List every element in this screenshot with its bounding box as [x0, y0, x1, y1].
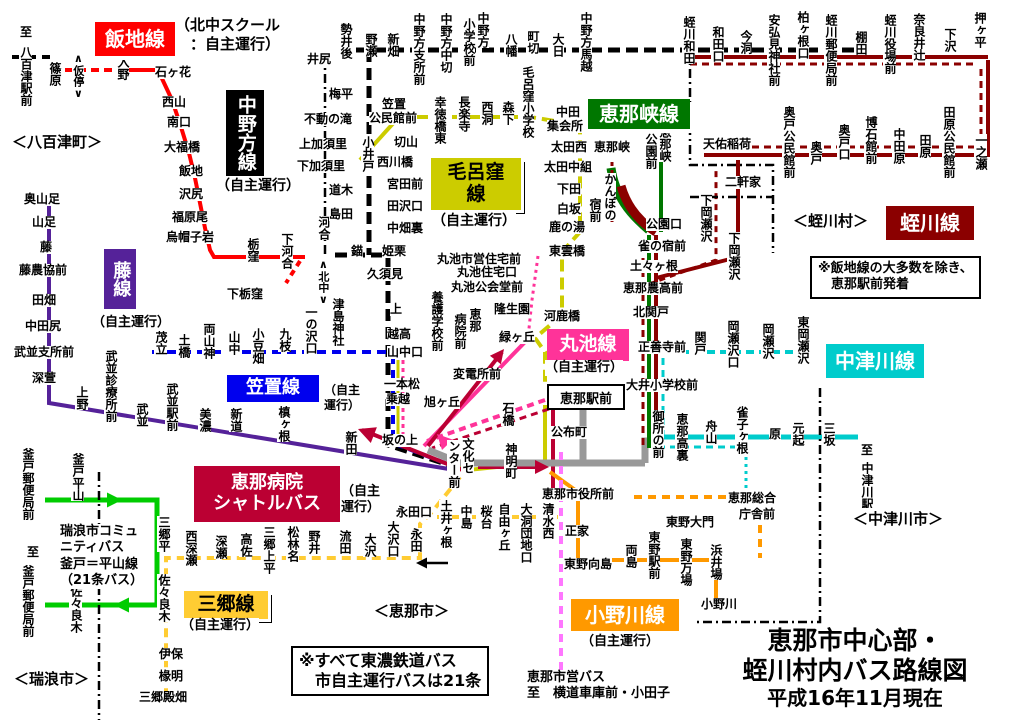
station-label: 下加須里 — [297, 160, 345, 173]
station-label: 中野方 — [476, 12, 489, 48]
station-label: 桜台 — [479, 505, 492, 529]
station-label: 恵那峡 — [658, 126, 671, 162]
route-name-box-fuji: 藤線 — [104, 249, 136, 309]
station-label: 元起 — [791, 422, 804, 446]
station-label: 下栃窪 — [227, 288, 263, 301]
station-label: 山中口 — [387, 346, 423, 359]
station-label: 中島 — [459, 505, 472, 529]
station-label: 久須見 — [367, 268, 403, 281]
station-label: 恵那高裏 — [675, 413, 688, 461]
station-label: 田沢口 — [387, 200, 423, 213]
station-label: 大井小学校前 — [626, 379, 698, 392]
route-name-box-onogawa: 小野川線 — [571, 599, 679, 631]
route-name-box-shuttle: 恵那病院シャトルバス — [194, 466, 340, 522]
station-label: 藤農協前 — [19, 264, 67, 277]
station-label: 雀子ヶ根 — [735, 406, 748, 454]
station-label: 二軒家 — [725, 176, 761, 189]
station-label: 茂立 — [154, 331, 167, 355]
station-label: 笠置 — [382, 98, 406, 111]
station-label: 今洞 — [739, 30, 752, 54]
station-label: 佐々良木 — [157, 574, 170, 622]
region-boundary-label: ＜瑞浪市＞ — [14, 668, 89, 689]
station-label: 至 — [27, 546, 39, 559]
station-label: 八百津駅前 — [19, 46, 32, 106]
ena-station-box: 恵那駅前 — [547, 384, 625, 410]
station-label: 北関戸 — [633, 306, 669, 319]
map-note-shuttle-jishu: （自主運行） — [341, 484, 380, 517]
route-name-box-morokubo: 毛呂窪線 — [431, 158, 521, 210]
station-label: 井尻 — [307, 53, 331, 66]
station-label: 緑ヶ丘 — [499, 331, 535, 344]
station-label: 土々ヶ根 — [630, 260, 678, 273]
station-label: 恵那市役所前 — [542, 488, 614, 501]
station-label: 幸徳橋東 — [433, 96, 446, 144]
station-label: 自由ヶ丘 — [497, 503, 510, 551]
station-label: 槙ヶ根 — [277, 406, 290, 442]
direction-arrow-icon — [114, 598, 129, 613]
station-label: 勢井後 — [339, 23, 352, 59]
station-label: ∧仮停∨ — [72, 52, 84, 100]
station-label: 奥戸 — [809, 141, 822, 165]
station-label: 上 — [390, 303, 402, 316]
station-label: かんぽの — [603, 173, 616, 221]
map-note-iiji-depot-note: ※飯地線の大多数を除き、 恵那駅前発着 — [810, 256, 981, 299]
title-line-1: 恵那市中心部・ — [700, 626, 1010, 656]
station-label: 田原 — [918, 134, 931, 158]
station-label: 正善寺前 — [638, 341, 686, 354]
station-label: 小井戸 — [361, 136, 374, 172]
station-label: 錨 — [351, 245, 363, 258]
station-label: 天佑稲荷 — [703, 138, 751, 151]
station-label: 中野方支所前 — [412, 13, 425, 85]
station-label: 姫栗 — [382, 245, 406, 258]
station-label: 長楽寺 — [457, 96, 470, 132]
station-label: 烏帽子岩 — [166, 231, 214, 244]
station-label: 椽明 — [159, 670, 183, 683]
title-date: 平成16年11月現在 — [700, 686, 1010, 710]
station-label: 両山神 — [202, 323, 215, 359]
station-label: 伊保 — [159, 648, 183, 661]
station-label: 佐々良木 — [69, 585, 82, 633]
station-label: 文化セ — [461, 438, 474, 474]
station-label: 中田尻 — [25, 320, 61, 333]
station-label: 下河合 — [280, 233, 293, 269]
station-label: 武並支所前 — [14, 346, 74, 359]
station-label: 飯地 — [179, 165, 203, 178]
station-label: 太田中組 — [544, 161, 592, 174]
station-label: 白坂 — [557, 203, 581, 216]
station-label: 両島 — [624, 544, 637, 568]
map-note-ena-city-bus: 恵那市営バス至 横道車庫前・小田子 — [527, 670, 670, 703]
station-label: 押ヶ平 — [973, 12, 986, 48]
station-label: 蛭川和田 — [682, 16, 695, 64]
map-note-iiji-note: （北中スクール ：自主運行） — [175, 16, 280, 54]
station-label: 丸池公会堂前 — [451, 281, 523, 294]
station-label: 深萱 — [32, 372, 56, 385]
station-label: 釜戸郵便局前 — [21, 565, 34, 637]
station-label: 下沢 — [943, 28, 956, 52]
station-label: 正家 — [565, 525, 589, 538]
station-label: 和田口 — [711, 26, 724, 62]
station-label: 中田 — [556, 106, 580, 119]
map-title: 恵那市中心部・ 蛭川村内バス路線図 平成16年11月現在 — [700, 626, 1010, 710]
station-label: 一の沢口 — [304, 306, 317, 354]
route-name-box-nakanoho: 中野方線 — [226, 90, 264, 176]
map-note-onogawa-jishu: （自主運行） — [581, 634, 659, 650]
station-label: 至 — [20, 26, 32, 39]
station-label: 奥戸口 — [837, 124, 850, 160]
station-label: 三坂 — [822, 422, 835, 446]
station-label: 恵那 — [468, 308, 481, 332]
station-label: 公布町 — [551, 426, 587, 439]
station-label: 西洞 — [480, 101, 493, 125]
station-label: 新田 — [344, 431, 357, 455]
station-label: 高佐 — [239, 533, 252, 557]
station-label: 三郷殿畑 — [139, 691, 187, 704]
station-label: 恵那農高前 — [623, 282, 683, 295]
station-label: 東岡瀬沢 — [796, 316, 809, 364]
station-label: 旭ヶ丘 — [424, 396, 460, 409]
station-label: 田畑 — [32, 294, 56, 307]
region-boundary-label: ＜八百津町＞ — [12, 131, 102, 152]
station-label: 大沢口 — [386, 521, 399, 557]
station-label: 美濃 — [198, 408, 211, 432]
station-label: 鹿の湯 — [549, 221, 585, 234]
station-label: 安弘見神社前 — [767, 14, 780, 86]
station-label: 柏ヶ根口 — [796, 11, 809, 59]
route-name-box-maruike: 丸池線 — [547, 329, 629, 361]
station-label: 東野向島 — [564, 558, 612, 571]
station-label: 太田西 — [551, 141, 587, 154]
station-label: 新道 — [229, 408, 242, 432]
station-label: 蛭川郵便局前 — [824, 14, 837, 86]
station-label: 恵那峡 — [594, 141, 630, 154]
station-label: 毛呂窪小学校 — [521, 66, 534, 138]
station-label: 公園前 — [644, 133, 657, 169]
station-label: 中田原 — [892, 128, 905, 164]
station-label: 小学校前 — [462, 18, 475, 66]
station-label: 上野 — [75, 386, 88, 410]
route-name-box-enakyo: 恵那峡線 — [588, 99, 690, 129]
station-label: 河合 — [317, 216, 330, 240]
station-label: 棚田 — [854, 31, 867, 55]
station-label: 山中 — [227, 331, 240, 355]
station-label: 釜戸郵便局前 — [21, 448, 34, 520]
station-label: 石橋 — [501, 402, 514, 426]
station-label: 永田口 — [396, 506, 432, 519]
station-label: 大沢 — [363, 533, 376, 557]
map-note-kasagi-jishu: （自主運行） — [324, 383, 360, 413]
route-name-box-nakatsugawa: 中津川線 — [826, 344, 924, 378]
station-label: 原 — [769, 428, 781, 441]
station-label: 下田 — [557, 183, 581, 196]
map-note-fuji-jishu: （自主運行） — [92, 315, 170, 331]
station-label: 野井 — [307, 530, 320, 554]
station-label: 松林名 — [286, 526, 299, 562]
station-label: 永田 — [409, 528, 422, 552]
route-name-box-iiji: 飯地線 — [95, 22, 175, 56]
station-label: 篠原 — [48, 62, 61, 86]
station-label: 関戸 — [693, 331, 706, 355]
region-boundary-label: ＜蛭川村＞ — [793, 210, 868, 231]
station-label: 道木 — [329, 184, 353, 197]
station-label: 中畑裏 — [387, 222, 423, 235]
route-line-iiji-main — [122, 70, 305, 257]
station-label: 東野駅前 — [647, 531, 660, 579]
title-line-2: 蛭川村内バス路線図 — [700, 656, 1010, 686]
station-label: 中野方中切 — [439, 13, 452, 73]
station-label: 武並 — [135, 403, 148, 427]
route-line-maruike-dot — [528, 256, 538, 338]
station-label: 大福橋 — [164, 141, 200, 154]
station-label: 切山 — [394, 136, 418, 149]
station-label: 奥山足 — [24, 193, 60, 206]
station-label: 小豆畑 — [251, 328, 264, 364]
station-label: 小野川 — [701, 598, 737, 611]
station-label: 河鹿橋 — [544, 310, 580, 323]
route-name-box-misato: 三郷線 — [184, 591, 268, 619]
station-label: 東野大門 — [666, 516, 714, 529]
station-label: 公園口 — [646, 218, 682, 231]
station-label: 石ヶ花 — [155, 66, 191, 79]
station-label: 武並駅前 — [165, 383, 178, 431]
station-label: 舟山 — [704, 420, 717, 444]
station-label: 津島神社 — [331, 298, 344, 346]
station-label: 西山 — [162, 96, 186, 109]
map-note-misato-jishu: （自主運行） — [181, 618, 259, 634]
station-label: 坂の上 — [382, 434, 418, 447]
station-label: 釜戸平山 — [71, 453, 84, 501]
station-label: 岡瀬沢 — [761, 323, 774, 359]
station-label: 三郷平 — [157, 516, 170, 552]
station-label: 入野 — [116, 56, 129, 80]
station-label: 三郷上平 — [262, 526, 275, 574]
station-label: 宮田前 — [387, 178, 423, 191]
station-label: 新畑 — [386, 33, 399, 57]
station-label: 流田 — [338, 530, 351, 554]
station-label: 島田 — [329, 208, 353, 221]
station-label: 丸池市営住宅前 — [437, 253, 521, 266]
station-label: 中野方馬越 — [579, 12, 592, 72]
station-label: 土井ヶ根 — [439, 500, 452, 548]
station-label: 野瀬 — [364, 33, 377, 57]
station-label: 隆生園 — [494, 303, 530, 316]
station-label: 乗越 — [386, 393, 410, 406]
station-label: 浜井場 — [709, 544, 722, 580]
station-label: 集会所 — [547, 120, 583, 133]
region-boundary-label: ＜中津川市＞ — [853, 508, 943, 529]
station-label: 清水西 — [541, 503, 554, 539]
route-name-box-hirukawa: 蛭川線 — [886, 206, 974, 240]
station-label: 博石館前 — [864, 116, 877, 164]
station-label: 西深瀬 — [184, 530, 197, 566]
station-label: 越高 — [387, 328, 411, 341]
station-label: ∧北中∨ — [317, 258, 329, 306]
station-label: 東雲橋 — [549, 245, 585, 258]
station-label: 養護学校前 — [430, 291, 443, 351]
station-label: 至 — [861, 444, 873, 457]
station-label: 福原尾 — [172, 211, 208, 224]
station-label: 雀の宿前 — [638, 240, 686, 253]
station-label: 栃窪 — [246, 238, 259, 262]
station-label: 梅平 — [329, 88, 353, 101]
station-label: 庁舎前 — [739, 508, 775, 521]
map-note-nakanoho-jishu: （自主運行） — [216, 178, 300, 196]
station-label: 岡瀬沢口 — [726, 320, 739, 368]
station-label: 奥戸公民館前 — [782, 106, 795, 178]
direction-arrow-icon — [107, 493, 122, 508]
station-label: 恵那総合 — [728, 492, 776, 505]
station-label: ンター前 — [447, 440, 460, 488]
region-boundary-label: ＜恵那市＞ — [374, 600, 449, 621]
station-label: 丸池住宅口 — [457, 266, 517, 279]
station-label: 下岡瀬沢 — [727, 232, 740, 280]
station-label: 西川橋 — [377, 156, 413, 169]
station-label: 公民館前 — [369, 112, 417, 125]
station-label: 深瀬 — [214, 535, 227, 559]
station-label: 山足 — [32, 216, 56, 229]
map-note-mizunami-community: 瑞浪市コミュニティバス釜戸＝平山線（21条バス） — [60, 524, 143, 589]
station-label: 神明町 — [504, 443, 517, 479]
map-note-maruike-jishu: （自主運行） — [545, 360, 623, 376]
bus-route-map: 恵那市中心部・ 蛭川村内バス路線図 平成16年11月現在 至八百津駅前篠原∧仮停… — [0, 0, 1024, 723]
station-label: 一本松 — [384, 378, 420, 391]
map-note-morokubo-jishu: （自主運行） — [432, 213, 516, 231]
station-label: 藤 — [40, 241, 52, 254]
station-label: 病院前 — [453, 313, 466, 349]
station-label: 町切 — [526, 30, 539, 54]
station-label: 上加須里 — [299, 138, 347, 151]
station-label: 奈良井辻 — [912, 13, 925, 61]
station-label: 蛭川役場前 — [883, 14, 896, 74]
station-label: 御所の前 — [651, 410, 664, 458]
station-label: 変電所前 — [453, 368, 501, 381]
map-note-tohnou-note: ※すべて東濃鉄道バス 市自主運行バスは21条 — [291, 646, 489, 696]
station-label: 武並診療所前 — [104, 350, 117, 422]
station-label: 東野万場 — [679, 538, 692, 586]
station-label: 南口 — [167, 116, 191, 129]
station-label: 大日 — [551, 33, 564, 57]
station-label: 森下 — [501, 101, 514, 125]
station-label: 沢尻 — [179, 188, 203, 201]
station-label: 土橋 — [177, 334, 190, 358]
station-label: 宿前 — [588, 198, 601, 222]
route-name-box-kasagi: 笠置線 — [227, 375, 319, 402]
station-label: 不動の滝 — [304, 113, 352, 126]
station-label: 一之瀬 — [974, 134, 987, 170]
station-label: 九枝 — [278, 328, 291, 352]
station-label: 大洞団地口 — [519, 503, 532, 563]
station-label: 田原公民館前 — [942, 106, 955, 178]
station-label: 下岡瀬沢 — [699, 194, 712, 242]
station-label: 八幡 — [504, 33, 517, 57]
